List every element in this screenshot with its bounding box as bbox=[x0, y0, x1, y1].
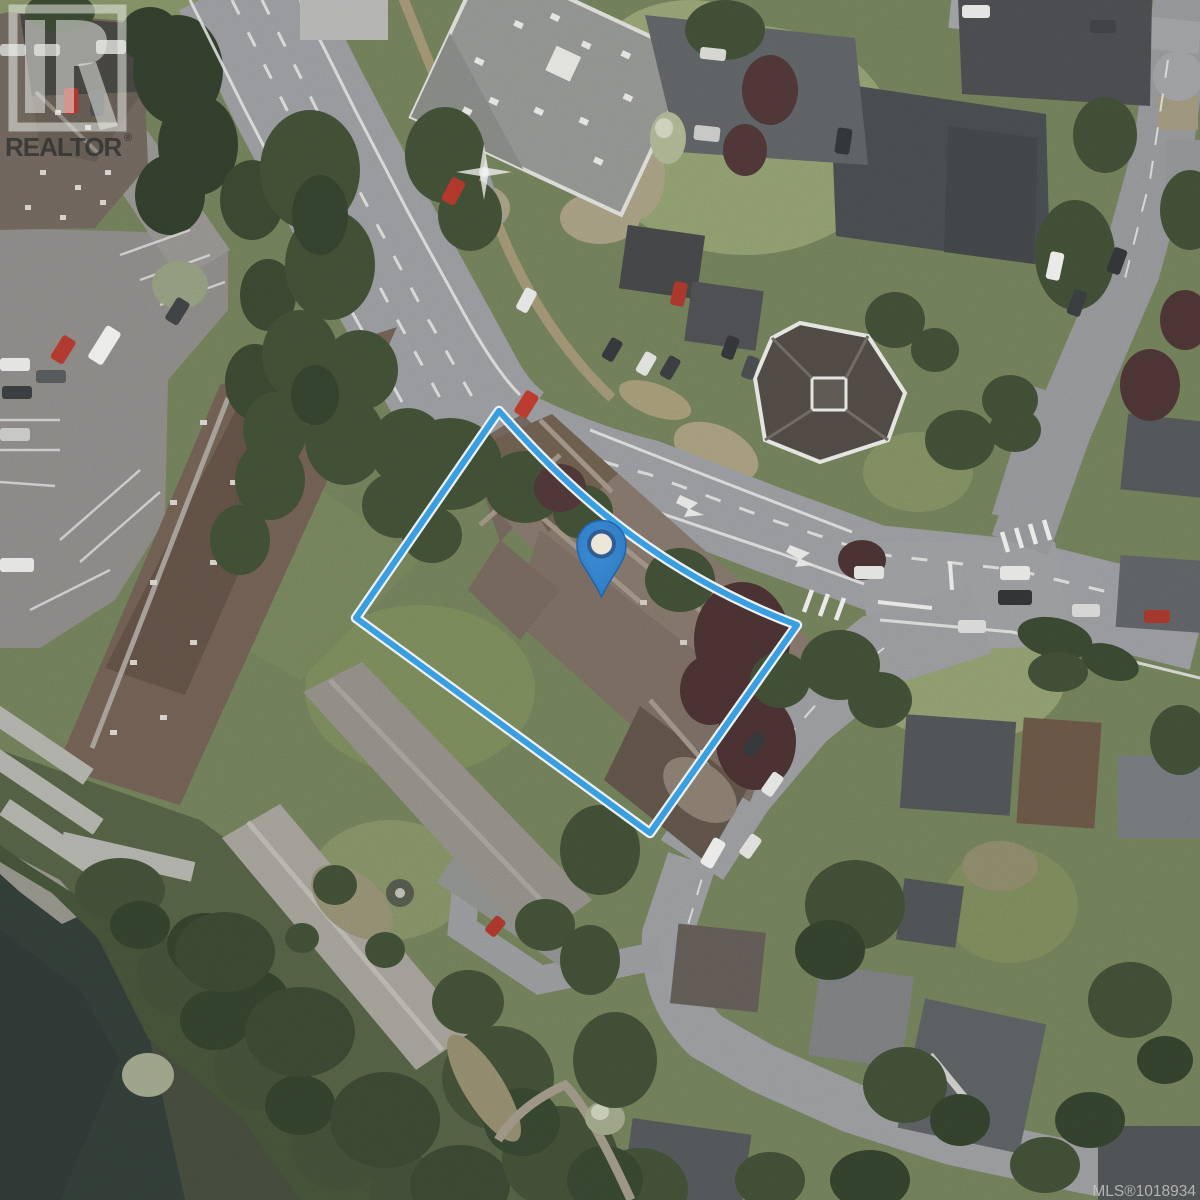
svg-text:®: ® bbox=[124, 132, 132, 144]
svg-text:MLS®1018934: MLS®1018934 bbox=[1092, 1183, 1196, 1200]
svg-text:REALTOR: REALTOR bbox=[5, 132, 122, 162]
